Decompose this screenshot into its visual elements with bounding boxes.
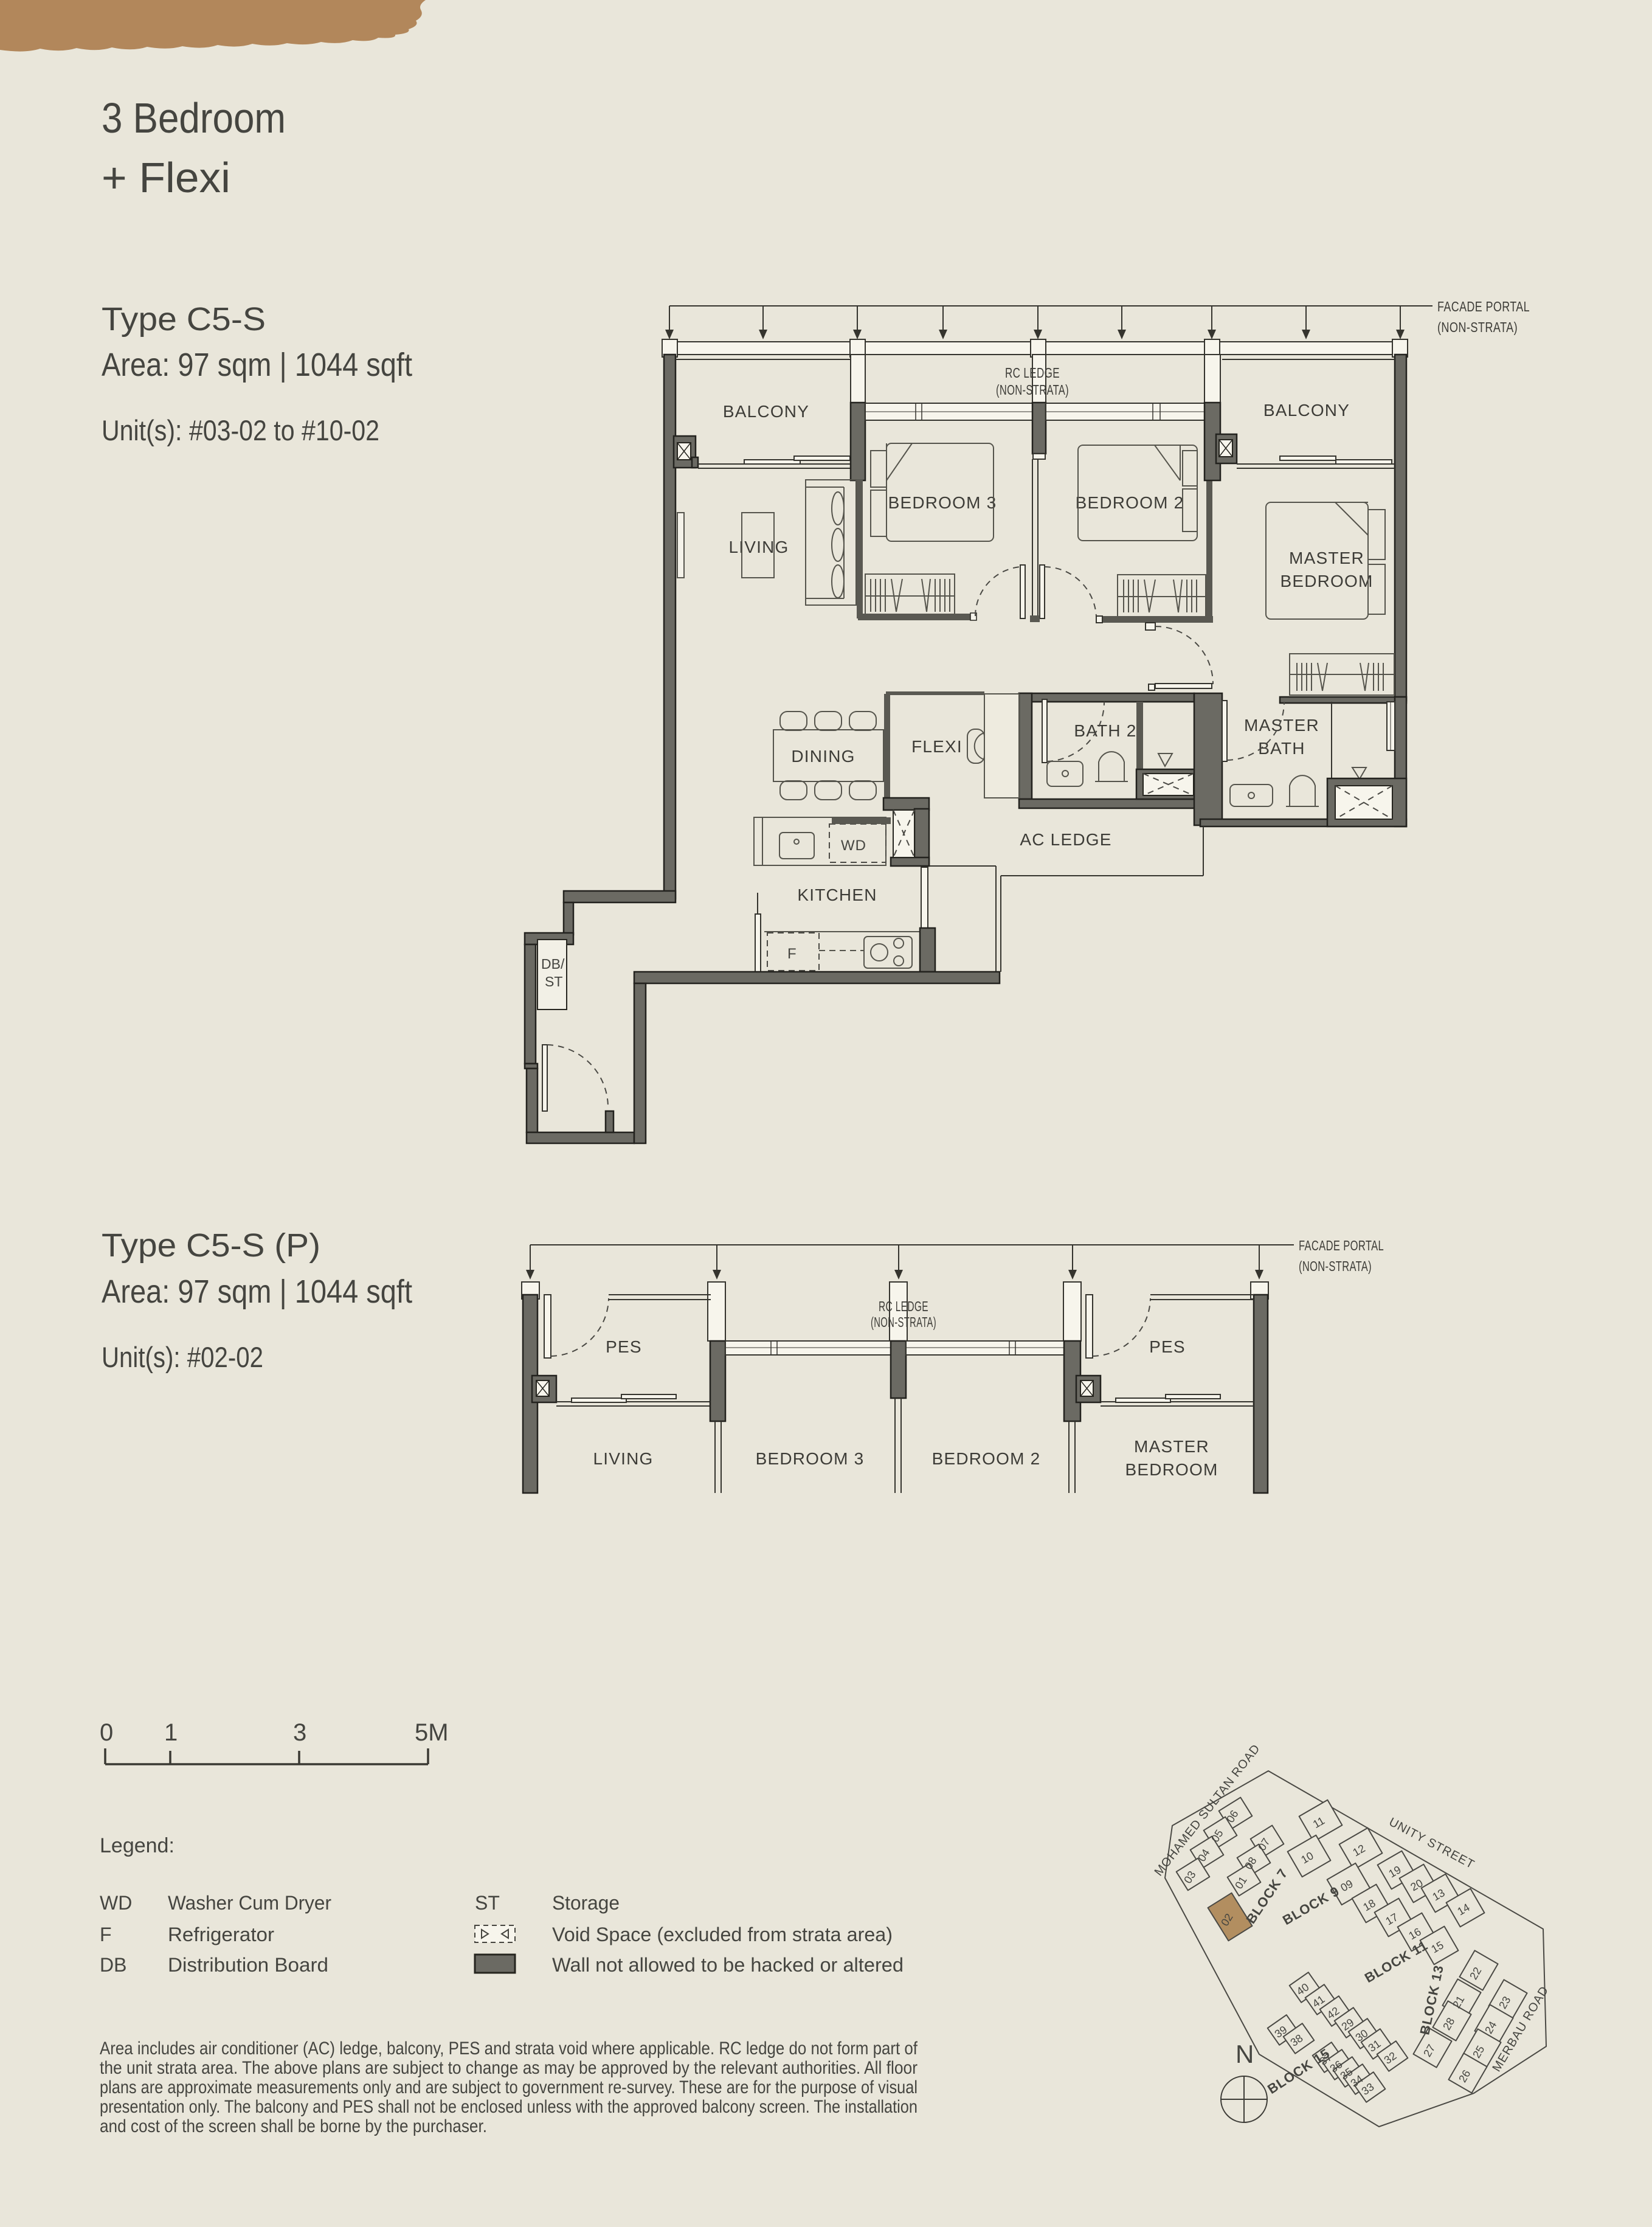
svg-text:N: N	[1236, 2040, 1254, 2068]
svg-text:BALCONY: BALCONY	[723, 402, 809, 421]
svg-text:MASTER: MASTER	[1244, 716, 1319, 735]
svg-text:Type C5-S: Type C5-S	[102, 301, 266, 338]
svg-text:PES: PES	[606, 1337, 642, 1356]
svg-text:DB: DB	[100, 1954, 126, 1976]
svg-text:BEDROOM 3: BEDROOM 3	[756, 1449, 865, 1468]
svg-text:DB/: DB/	[541, 956, 565, 972]
svg-text:Legend:: Legend:	[100, 1834, 175, 1857]
svg-text:3 Bedroom: 3 Bedroom	[102, 94, 286, 142]
svg-text:Storage: Storage	[552, 1892, 620, 1914]
svg-text:WD: WD	[841, 837, 866, 854]
svg-text:BEDROOM 2: BEDROOM 2	[932, 1449, 1041, 1468]
svg-text:RC LEDGE: RC LEDGE	[1005, 365, 1060, 381]
svg-text:Wall not allowed to be hacked: Wall not allowed to be hacked or altered	[552, 1954, 904, 1976]
svg-text:F: F	[100, 1924, 112, 1945]
svg-text:(NON-STRATA): (NON-STRATA)	[996, 382, 1069, 398]
svg-text:BEDROOM 3: BEDROOM 3	[888, 493, 997, 512]
svg-text:FLEXI: FLEXI	[911, 737, 963, 756]
svg-text:5M: 5M	[415, 1719, 449, 1746]
svg-text:0: 0	[100, 1719, 113, 1746]
svg-text:(NON-STRATA): (NON-STRATA)	[871, 1314, 936, 1330]
svg-text:Distribution Board: Distribution Board	[168, 1954, 328, 1976]
svg-text:Area includes air conditioner: Area includes air conditioner (AC) ledge…	[100, 2038, 918, 2059]
svg-text:F: F	[787, 946, 797, 962]
svg-text:presentation only. The balcony: presentation only. The balcony and PES s…	[100, 2097, 918, 2117]
svg-text:LIVING: LIVING	[728, 538, 789, 556]
svg-text:FACADE PORTAL: FACADE PORTAL	[1299, 1238, 1384, 1253]
svg-text:WD: WD	[100, 1892, 132, 1914]
svg-text:KITCHEN: KITCHEN	[797, 885, 877, 904]
svg-text:BATH 2: BATH 2	[1074, 721, 1136, 740]
svg-text:3: 3	[293, 1719, 306, 1746]
svg-text:BEDROOM 2: BEDROOM 2	[1076, 493, 1184, 512]
svg-text:RC LEDGE: RC LEDGE	[879, 1298, 928, 1314]
svg-text:ST: ST	[475, 1892, 500, 1914]
svg-text:BEDROOM: BEDROOM	[1280, 572, 1373, 591]
svg-text:plans are approximate measurem: plans are approximate measurements only …	[100, 2077, 918, 2097]
svg-text:MASTER: MASTER	[1289, 549, 1364, 567]
svg-text:DINING: DINING	[791, 747, 855, 766]
svg-text:the unit strata area. The abov: the unit strata area. The above plans ar…	[100, 2058, 918, 2078]
svg-text:BEDROOM: BEDROOM	[1125, 1460, 1218, 1479]
svg-text:BALCONY: BALCONY	[1263, 401, 1350, 420]
svg-text:MASTER: MASTER	[1134, 1437, 1209, 1456]
svg-text:and cost of the screen shall b: and cost of the screen shall be borne by…	[100, 2116, 487, 2136]
svg-text:Refrigerator: Refrigerator	[168, 1924, 274, 1945]
svg-text:AC LEDGE: AC LEDGE	[1020, 830, 1111, 849]
svg-text:FACADE PORTAL: FACADE PORTAL	[1437, 299, 1530, 314]
svg-text:ST: ST	[545, 974, 562, 989]
svg-text:Unit(s): #03-02 to #10-02: Unit(s): #03-02 to #10-02	[102, 414, 379, 446]
svg-text:Unit(s): #02-02: Unit(s): #02-02	[102, 1341, 263, 1373]
svg-text:(NON-STRATA): (NON-STRATA)	[1437, 319, 1518, 335]
svg-text:Type C5-S (P): Type C5-S (P)	[102, 1227, 320, 1264]
svg-text:1: 1	[164, 1719, 178, 1746]
svg-text:PES: PES	[1149, 1337, 1186, 1356]
svg-text:(NON-STRATA): (NON-STRATA)	[1299, 1258, 1372, 1274]
svg-text:BATH: BATH	[1258, 739, 1305, 758]
svg-text:LIVING: LIVING	[593, 1449, 653, 1468]
svg-text:Washer Cum Dryer: Washer Cum Dryer	[168, 1892, 331, 1914]
svg-text:Void Space (excluded from stra: Void Space (excluded from strata area)	[552, 1924, 893, 1945]
svg-text:Area: 97 sqm | 1044 sqft: Area: 97 sqm | 1044 sqft	[102, 347, 412, 383]
svg-text:+ Flexi: + Flexi	[102, 154, 230, 201]
svg-text:Area: 97 sqm | 1044 sqft: Area: 97 sqm | 1044 sqft	[102, 1273, 412, 1310]
